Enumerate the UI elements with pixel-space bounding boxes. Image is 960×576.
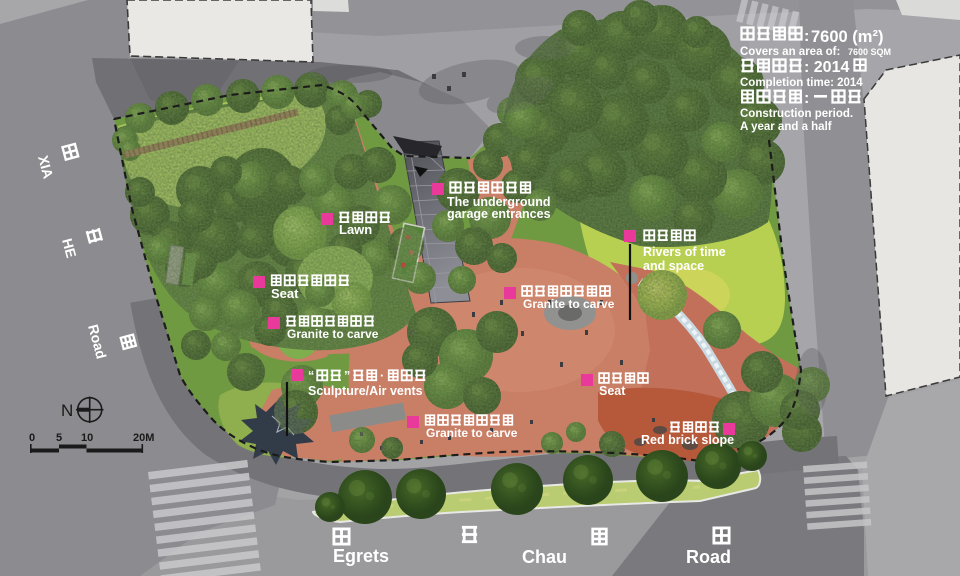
svg-text:Granite to carve: Granite to carve — [523, 297, 615, 311]
svg-text:A year and a half: A year and a half — [740, 121, 832, 133]
svg-text:Construction period.: Construction period. — [740, 108, 853, 120]
svg-text:Granite to carve: Granite to carve — [426, 426, 518, 440]
svg-text:10: 10 — [81, 432, 93, 444]
svg-text:N: N — [61, 401, 73, 420]
svg-text:5: 5 — [56, 432, 62, 444]
svg-text:Seat: Seat — [599, 384, 626, 398]
svg-text:7600 SQM: 7600 SQM — [848, 47, 891, 57]
svg-text:Chau: Chau — [522, 547, 567, 567]
svg-text:Road: Road — [686, 547, 731, 567]
svg-text:Covers an area of:: Covers an area of: — [740, 46, 840, 58]
svg-text:7600 (m²): 7600 (m²) — [811, 28, 883, 46]
svg-text:·: · — [380, 369, 384, 383]
svg-text:Red brick slope: Red brick slope — [641, 433, 734, 447]
svg-text:garage entrances: garage entrances — [447, 207, 551, 221]
svg-text:Completion time: 2014: Completion time: 2014 — [740, 77, 863, 89]
svg-text:”: ” — [344, 369, 350, 383]
svg-text:0: 0 — [29, 432, 35, 444]
svg-text:Rivers of time: Rivers of time — [643, 245, 726, 259]
svg-text:Egrets: Egrets — [333, 546, 389, 566]
svg-text::: : — [804, 28, 809, 45]
svg-text:: 2014: : 2014 — [804, 59, 849, 76]
svg-text:Lawn: Lawn — [339, 222, 372, 237]
svg-text:and space: and space — [643, 259, 704, 273]
svg-text:20M: 20M — [133, 432, 154, 444]
svg-text:“: “ — [308, 369, 314, 383]
svg-text:Seat: Seat — [271, 286, 299, 301]
svg-text::: : — [804, 90, 809, 107]
svg-text:Sculpture/Air vents: Sculpture/Air vents — [308, 384, 423, 398]
svg-text:Granite to carve: Granite to carve — [287, 327, 379, 341]
